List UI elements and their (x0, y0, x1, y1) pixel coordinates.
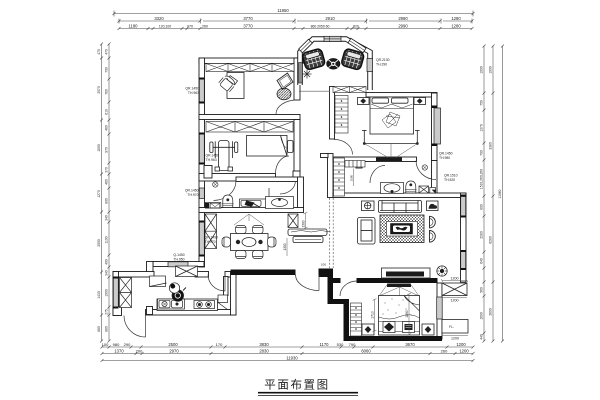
svg-text:120,100: 120,100 (159, 24, 171, 28)
svg-text:6060: 6060 (361, 348, 371, 353)
svg-text:1200: 1200 (451, 337, 459, 341)
svg-text:750: 750 (480, 100, 484, 106)
svg-text:TH.963: TH.963 (188, 91, 199, 95)
svg-text:100: 100 (102, 342, 109, 347)
svg-text:1430: 1430 (97, 291, 101, 299)
svg-text:1270: 1270 (97, 190, 101, 198)
svg-text:1370: 1370 (480, 124, 484, 132)
svg-text:3830: 3830 (259, 342, 269, 347)
svg-text:560: 560 (480, 287, 484, 293)
svg-text:700: 700 (105, 67, 109, 73)
svg-text:1800: 1800 (97, 144, 101, 152)
svg-text:530: 530 (337, 342, 344, 347)
svg-text:3670: 3670 (405, 342, 415, 347)
svg-text:1690: 1690 (480, 312, 484, 320)
svg-text:2000: 2000 (97, 239, 101, 247)
svg-text:1900: 1900 (489, 66, 493, 74)
svg-text:170: 170 (216, 342, 223, 347)
svg-text:3770: 3770 (243, 16, 253, 21)
svg-text:470: 470 (105, 49, 109, 55)
svg-text:FL-: FL- (449, 325, 454, 329)
svg-text:6280: 6280 (489, 236, 493, 244)
svg-text:1280: 1280 (451, 23, 461, 28)
svg-text:2070: 2070 (97, 86, 101, 94)
svg-text:100: 100 (321, 263, 326, 267)
svg-text:11950: 11950 (277, 8, 289, 13)
svg-text:2280: 2280 (480, 231, 484, 239)
svg-text:1370: 1370 (114, 348, 124, 353)
svg-text:860: 860 (97, 326, 101, 332)
svg-text:TH.290: TH.290 (376, 62, 387, 66)
svg-text:1900: 1900 (480, 66, 484, 74)
svg-text:980: 980 (113, 342, 120, 347)
svg-text:TH.520: TH.520 (444, 178, 455, 182)
svg-text:640: 640 (480, 258, 484, 264)
svg-text:820: 820 (353, 24, 359, 28)
svg-text:460: 460 (105, 125, 109, 131)
svg-text:TH.980: TH.980 (439, 156, 450, 160)
svg-text:2990: 2990 (398, 23, 408, 28)
svg-text:1200: 1200 (456, 342, 466, 347)
svg-text:275: 275 (105, 309, 109, 315)
svg-text:200: 200 (136, 348, 143, 353)
svg-text:1300: 1300 (302, 220, 306, 227)
svg-text:平面布置图: 平面布置图 (264, 379, 330, 392)
svg-text:1280: 1280 (451, 16, 461, 21)
svg-text:2990: 2990 (398, 16, 408, 21)
svg-text:1170: 1170 (319, 342, 329, 347)
svg-text:1000: 1000 (105, 289, 109, 297)
svg-text:260: 260 (441, 348, 448, 353)
svg-text:1510,260,200: 1510,260,200 (480, 169, 484, 189)
svg-text:1200: 1200 (459, 348, 469, 353)
svg-text:890: 890 (480, 204, 484, 210)
svg-text:2830: 2830 (259, 348, 269, 353)
svg-text:400: 400 (105, 259, 109, 265)
svg-text:460: 460 (105, 179, 109, 185)
svg-text:1200: 1200 (451, 299, 459, 303)
svg-text:2690: 2690 (489, 308, 493, 316)
svg-text:TH.950: TH.950 (173, 257, 184, 261)
svg-text:1080: 1080 (350, 174, 354, 181)
svg-text:1710: 1710 (371, 311, 375, 319)
svg-text:3770: 3770 (243, 23, 253, 28)
svg-text:370: 370 (105, 167, 109, 173)
svg-text:290: 290 (124, 342, 131, 347)
svg-text:2970: 2970 (169, 348, 179, 353)
svg-text:1180: 1180 (128, 23, 138, 28)
svg-text:860: 860 (105, 326, 109, 332)
svg-text:2910: 2910 (325, 16, 335, 21)
svg-text:1300: 1300 (283, 243, 287, 250)
svg-text:260: 260 (202, 24, 208, 28)
svg-text:TH.970: TH.970 (187, 193, 198, 197)
svg-text:340: 340 (105, 215, 109, 221)
svg-text:760: 760 (105, 89, 109, 95)
svg-text:1200: 1200 (451, 277, 459, 281)
svg-text:860 2050 60: 860 2050 60 (311, 24, 330, 28)
svg-text:790: 790 (349, 342, 356, 347)
svg-text:970: 970 (187, 24, 193, 28)
svg-text:470: 470 (97, 49, 101, 55)
svg-text:340: 340 (105, 270, 109, 276)
svg-text:800: 800 (105, 198, 109, 204)
svg-text:TH.970: TH.970 (205, 240, 216, 244)
svg-text:11930: 11930 (286, 355, 298, 360)
svg-text:3380: 3380 (489, 142, 493, 150)
svg-text:2500: 2500 (168, 342, 178, 347)
svg-text:TH.963: TH.963 (206, 158, 217, 162)
svg-text:440: 440 (480, 334, 484, 340)
svg-text:1100: 1100 (105, 236, 109, 243)
svg-text:700: 700 (480, 150, 484, 156)
svg-text:11960: 11960 (498, 189, 502, 198)
svg-text:1890: 1890 (405, 310, 409, 318)
svg-text:610: 610 (105, 109, 109, 115)
svg-text:970: 970 (105, 147, 109, 153)
svg-text:3320: 3320 (154, 16, 164, 21)
